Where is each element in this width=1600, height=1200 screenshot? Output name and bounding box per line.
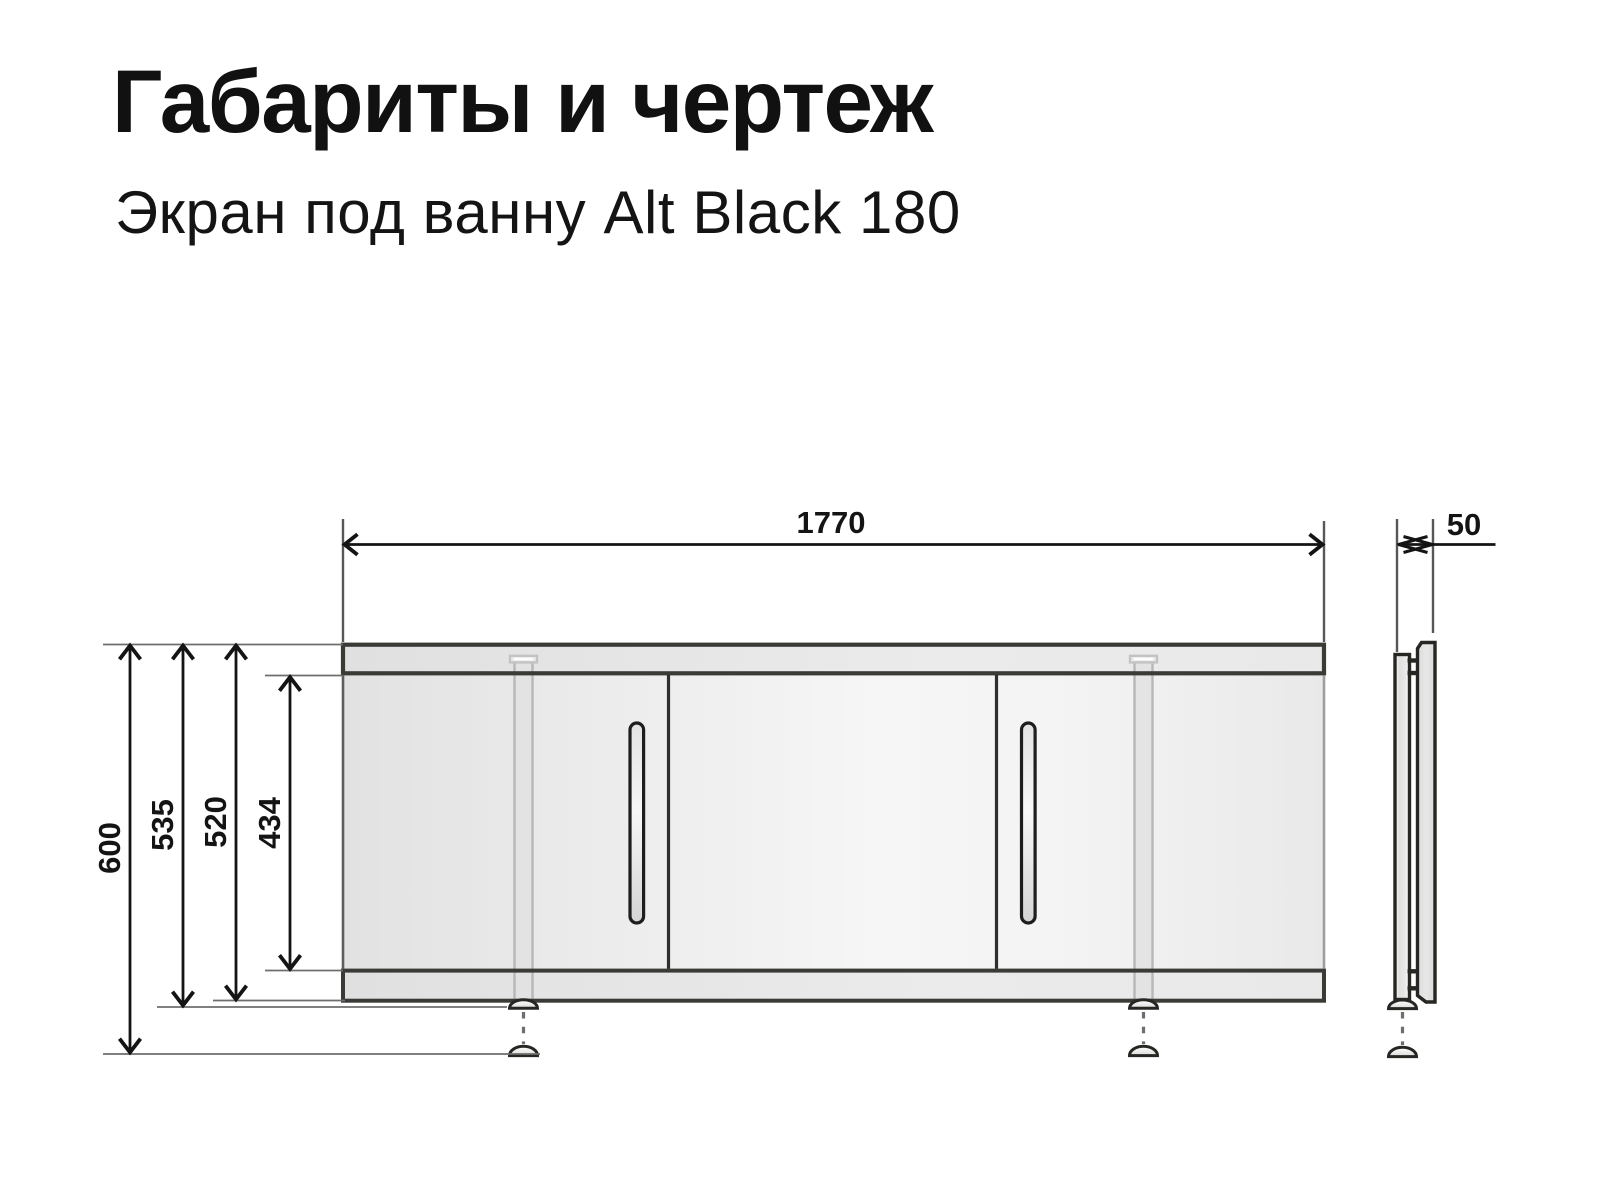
svg-text:50: 50 [1447, 507, 1481, 542]
svg-text:535: 535 [145, 799, 180, 851]
svg-text:434: 434 [252, 796, 287, 848]
svg-text:600: 600 [92, 822, 127, 874]
svg-text:520: 520 [198, 796, 233, 848]
svg-text:1770: 1770 [797, 505, 866, 540]
